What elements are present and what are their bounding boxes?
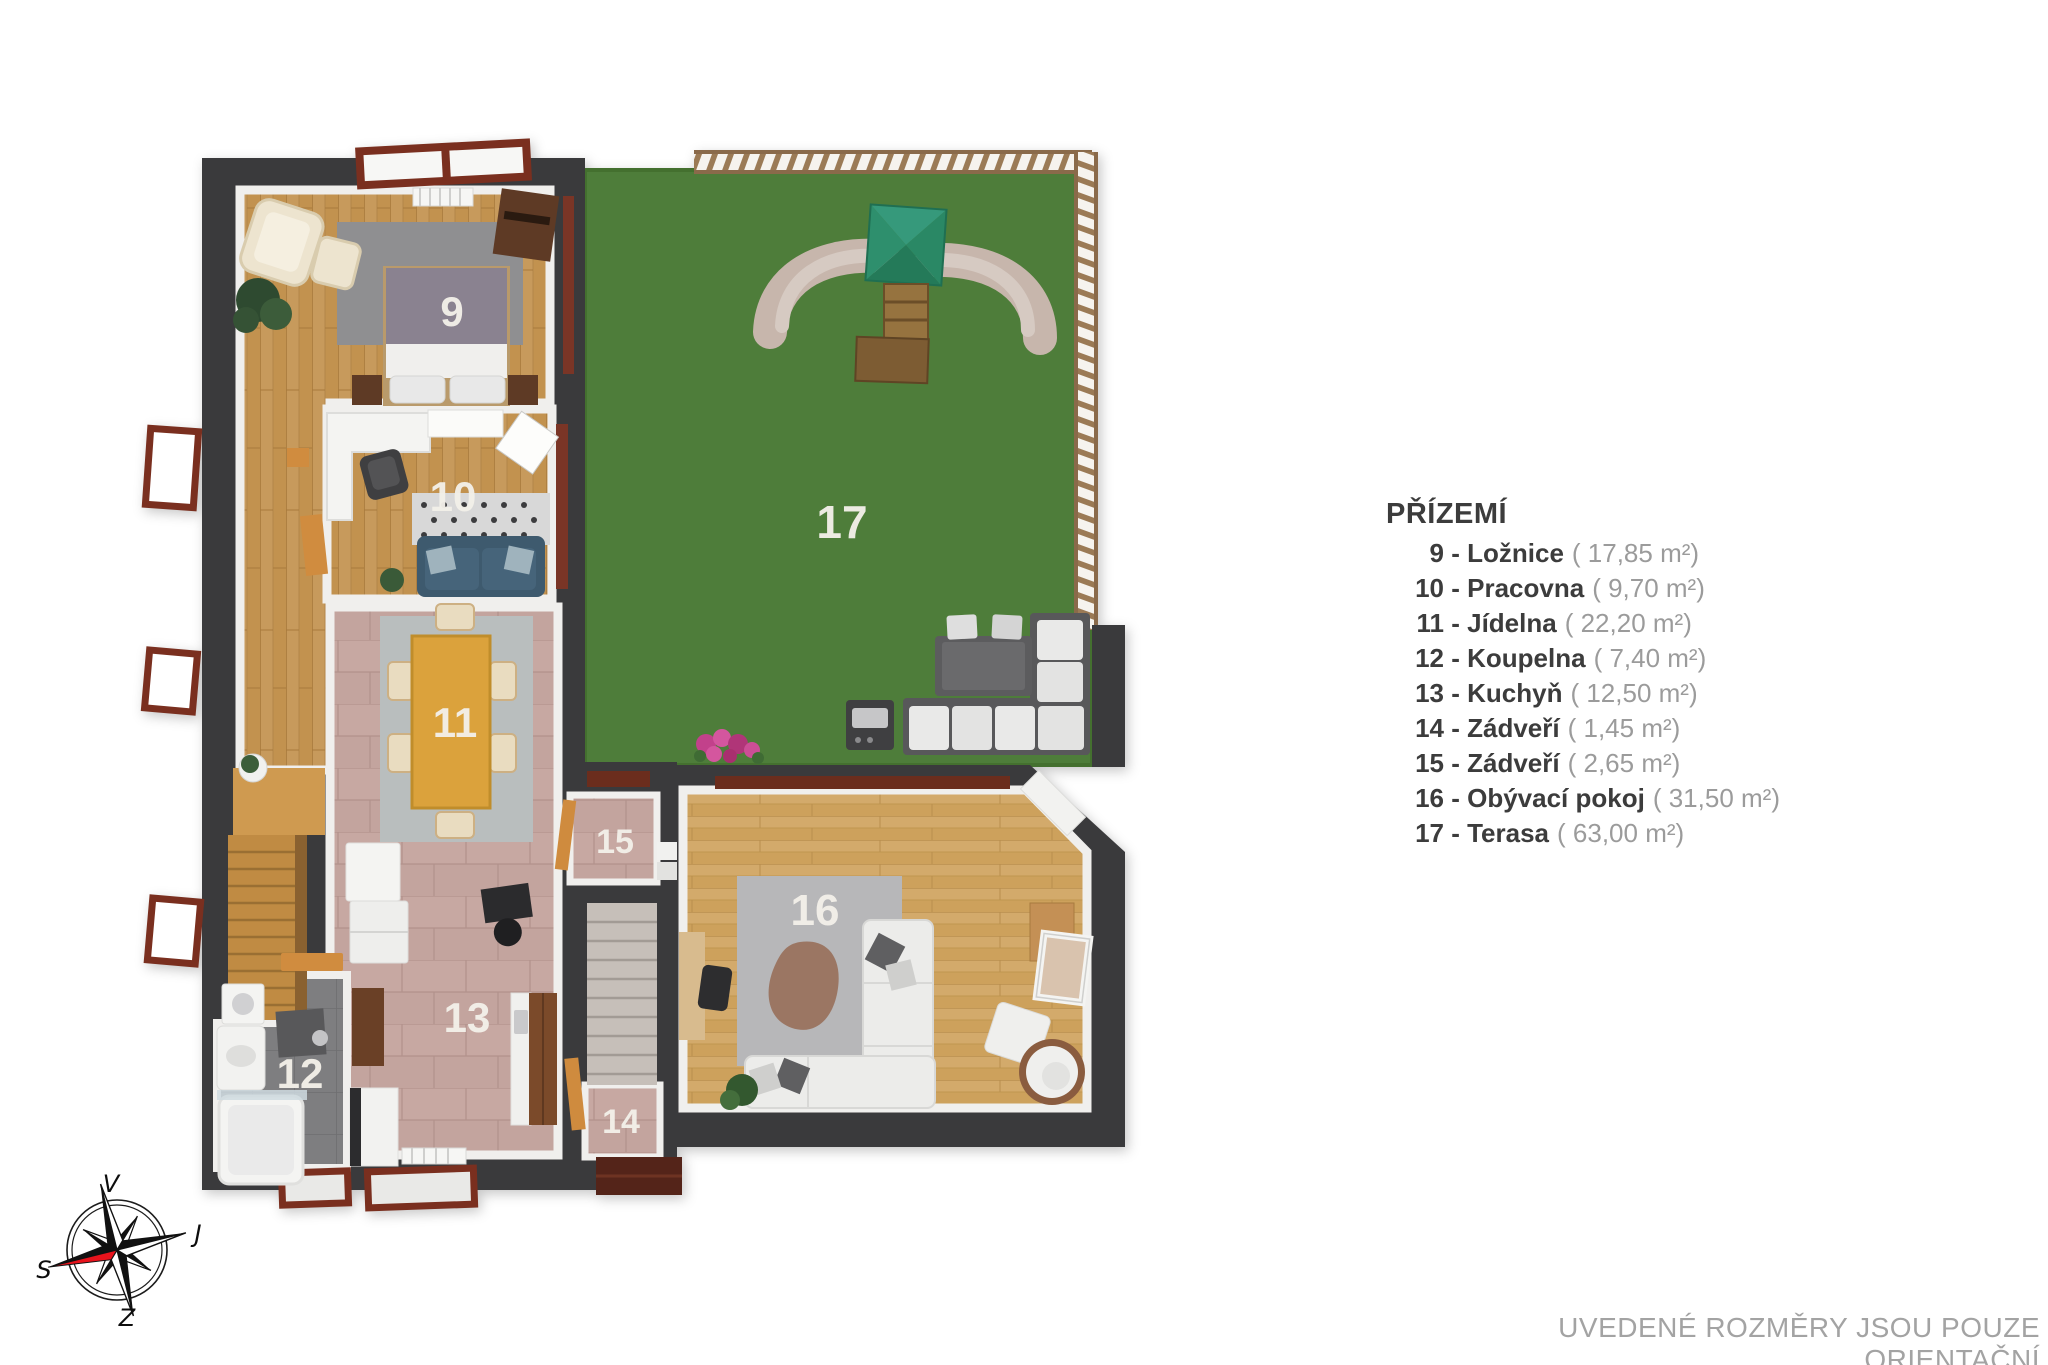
legend-item: 13 - Kuchyň( 12,50 m²) — [1386, 678, 1780, 713]
sideboard — [428, 410, 503, 437]
legend-room-name: Obývací pokoj — [1467, 783, 1645, 814]
room-label-16: 16 — [791, 886, 840, 935]
legend-room-area: ( 22,20 m²) — [1565, 608, 1692, 639]
legend-room-number: 12 — [1386, 643, 1444, 674]
legend-room-area: ( 7,40 m²) — [1594, 643, 1707, 674]
armchair — [1019, 1039, 1085, 1105]
legend-item: 11 - Jídelna( 22,20 m²) — [1386, 608, 1780, 643]
room-label-15: 15 — [596, 823, 634, 861]
room-label-17: 17 — [816, 496, 867, 548]
outdoor-stool — [946, 614, 977, 640]
nightstand — [508, 375, 538, 405]
legend-room-name: Zádveří — [1467, 748, 1560, 779]
legend-room-area: ( 12,50 m²) — [1570, 678, 1697, 709]
radiator — [413, 188, 473, 206]
door-sill — [587, 771, 650, 787]
grill — [846, 700, 894, 750]
plant — [241, 755, 259, 773]
legend-item: 15 - Zádveří( 2,65 m²) — [1386, 748, 1780, 783]
terrace-corner-wall — [1092, 625, 1125, 767]
legend-room-area: ( 63,00 m²) — [1557, 818, 1684, 849]
page: 9 10 11 12 13 14 15 16 17 PŘÍZEMÍ 9 - Lo… — [0, 0, 2048, 1365]
window-east-1 — [563, 196, 574, 374]
legend-room-number: 16 — [1386, 783, 1444, 814]
legend-room-name: Ložnice — [1467, 538, 1564, 569]
nightstand — [352, 375, 382, 405]
compass-letter-bottom: Z — [118, 1304, 136, 1332]
legend-room-name: Terasa — [1467, 818, 1549, 849]
compass-rose: V J S Z — [14, 1126, 234, 1365]
door — [281, 953, 343, 971]
sofa — [417, 536, 545, 597]
step — [657, 842, 677, 860]
legend-room-number: 13 — [1386, 678, 1444, 709]
window-bottom-2 — [367, 1168, 474, 1208]
bed — [383, 266, 510, 406]
compass-letter-top: V — [103, 1170, 121, 1198]
step — [657, 862, 677, 880]
play-platform — [855, 337, 928, 383]
tall-cabinet — [352, 988, 384, 1066]
legend-room-name: Zádveří — [1467, 713, 1560, 744]
legend-room-area: ( 31,50 m²) — [1653, 783, 1780, 814]
play-ladder — [884, 284, 928, 342]
legend-room-area: ( 2,65 m²) — [1568, 748, 1681, 779]
window-left-2 — [145, 650, 198, 712]
legend-room-number: 15 — [1386, 748, 1444, 779]
legend-room-area: ( 17,85 m²) — [1572, 538, 1699, 569]
legend-room-number: 14 — [1386, 713, 1444, 744]
room-label-12: 12 — [277, 1050, 324, 1097]
washing-machine — [222, 984, 264, 1024]
legend-item: 12 - Koupelna( 7,40 m²) — [1386, 643, 1780, 678]
fence-right — [1074, 152, 1098, 630]
legend-item: 17 - Terasa( 63,00 m²) — [1386, 818, 1780, 853]
sliding-door-sill — [715, 776, 1010, 789]
dresser — [493, 188, 560, 261]
legend-item: 10 - Pracovna( 9,70 m²) — [1386, 573, 1780, 608]
compass-letter-right: J — [190, 1220, 201, 1248]
legend-item: 9 - Ložnice( 17,85 m²) — [1386, 538, 1780, 573]
plant-small — [380, 568, 404, 592]
legend-room-number: 10 — [1386, 573, 1444, 604]
legend-item: 14 - Zádveří( 1,45 m²) — [1386, 713, 1780, 748]
legend-room-name: Koupelna — [1467, 643, 1585, 674]
room-label-9: 9 — [440, 288, 463, 335]
legend-room-number: 11 — [1386, 608, 1444, 639]
legend-title: PŘÍZEMÍ — [1386, 498, 1780, 530]
window-east-2 — [556, 424, 568, 589]
ottoman — [310, 236, 362, 291]
disclaimer-text: UVEDENÉ ROZMĚRY JSOU POUZE ORIENTAČNÍ — [1400, 1312, 2040, 1365]
legend-room-name: Pracovna — [1467, 573, 1584, 604]
sink — [217, 1026, 265, 1090]
terrace — [585, 150, 1125, 767]
fence-top — [694, 150, 1092, 174]
staircase-basement — [587, 903, 657, 1085]
room-label-10: 10 — [430, 473, 477, 520]
outdoor-stool — [991, 614, 1022, 640]
legend-room-area: ( 1,45 m²) — [1568, 713, 1681, 744]
window-top — [359, 143, 528, 186]
window-left-1 — [145, 428, 198, 507]
entry-porch — [596, 1157, 682, 1195]
window-right — [1036, 933, 1089, 1002]
door-leaf — [287, 448, 309, 467]
play-tower-roof — [865, 204, 946, 285]
legend-room-area: ( 9,70 m²) — [1592, 573, 1705, 604]
chair — [697, 964, 733, 1012]
legend-item: 16 - Obývací pokoj( 31,50 m²) — [1386, 783, 1780, 818]
legend: PŘÍZEMÍ 9 - Ložnice( 17,85 m²) 10 - Prac… — [1386, 498, 1780, 853]
legend-room-number: 9 — [1386, 538, 1444, 569]
room-label-14: 14 — [602, 1103, 640, 1141]
compass-letter-left: S — [36, 1256, 51, 1284]
shower-head-icon — [312, 1030, 328, 1046]
legend-room-name: Jídelna — [1467, 608, 1557, 639]
room-label-11: 11 — [433, 699, 477, 746]
legend-room-name: Kuchyň — [1467, 678, 1562, 709]
fridge — [346, 843, 400, 901]
legend-room-number: 17 — [1386, 818, 1444, 849]
window-left-3 — [147, 898, 200, 964]
room-label-13: 13 — [444, 994, 491, 1041]
sink — [514, 1010, 528, 1034]
